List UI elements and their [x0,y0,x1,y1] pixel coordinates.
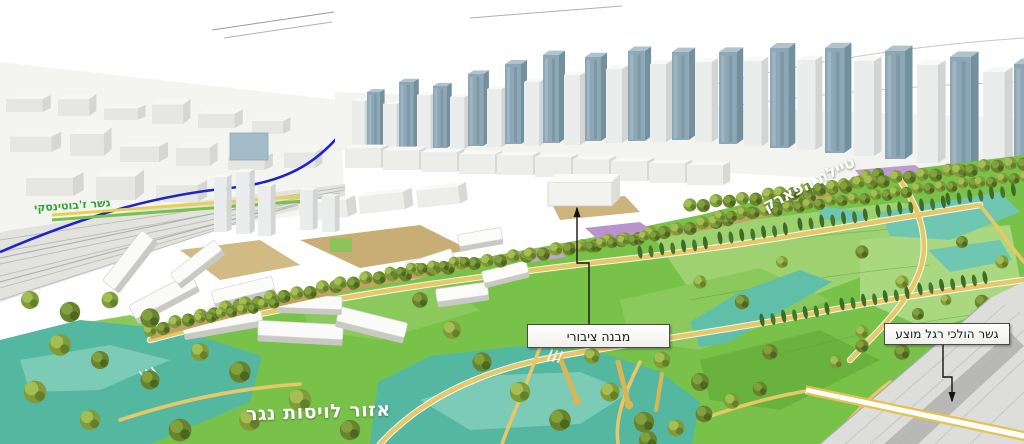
scene-canvas [0,0,1024,444]
pedestrian-bridge-label: גשר הולכי רגל מוצע [884,323,1010,345]
masterplan-render: מבנה ציבורי גשר הולכי רגל מוצע אזור לויס… [0,0,1024,444]
blue-glass-midrise [230,133,268,160]
public-building-label: מבנה ציבורי [527,324,670,348]
